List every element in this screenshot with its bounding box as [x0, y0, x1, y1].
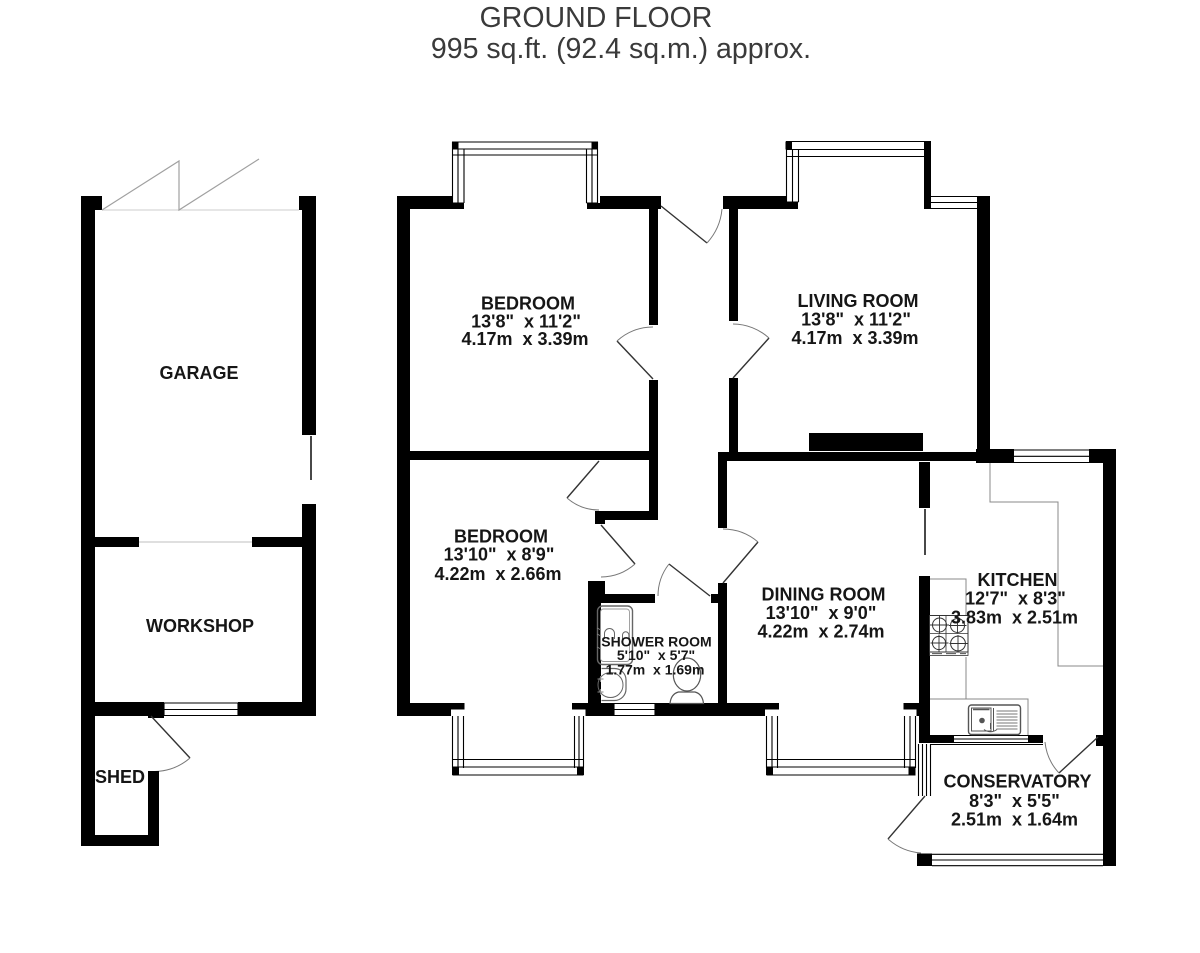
- svg-text:13'8" x 11'2": 13'8" x 11'2": [801, 310, 911, 330]
- svg-text:4.17m x 3.39m: 4.17m x 3.39m: [461, 329, 588, 349]
- svg-text:8'3" x 5'5": 8'3" x 5'5": [969, 791, 1060, 811]
- svg-text:4.22m x 2.66m: 4.22m x 2.66m: [434, 564, 561, 584]
- svg-text:SHED: SHED: [95, 767, 145, 787]
- svg-text:GROUND FLOOR: GROUND FLOOR: [480, 2, 713, 34]
- svg-text:KITCHEN: KITCHEN: [978, 570, 1058, 590]
- svg-text:LIVING ROOM: LIVING ROOM: [798, 291, 919, 311]
- svg-text:BEDROOM: BEDROOM: [454, 527, 548, 547]
- svg-text:1.77m x 1.69m: 1.77m x 1.69m: [606, 661, 705, 677]
- svg-text:12'7" x 8'3": 12'7" x 8'3": [965, 589, 1066, 609]
- svg-text:995 sq.ft. (92.4 sq.m.) approx: 995 sq.ft. (92.4 sq.m.) approx.: [431, 33, 811, 65]
- svg-text:13'10" x 8'9": 13'10" x 8'9": [444, 545, 555, 565]
- svg-text:WORKSHOP: WORKSHOP: [146, 616, 254, 636]
- svg-text:CONSERVATORY: CONSERVATORY: [943, 772, 1091, 792]
- svg-text:4.17m x 3.39m: 4.17m x 3.39m: [791, 328, 918, 348]
- svg-text:DINING ROOM: DINING ROOM: [762, 585, 886, 605]
- svg-text:3.83m x 2.51m: 3.83m x 2.51m: [951, 607, 1078, 627]
- svg-text:4.22m x 2.74m: 4.22m x 2.74m: [757, 621, 884, 641]
- svg-text:BEDROOM: BEDROOM: [481, 294, 575, 314]
- svg-text:GARAGE: GARAGE: [159, 363, 238, 383]
- svg-text:13'10" x 9'0": 13'10" x 9'0": [766, 603, 877, 623]
- svg-text:2.51m x 1.64m: 2.51m x 1.64m: [951, 810, 1078, 830]
